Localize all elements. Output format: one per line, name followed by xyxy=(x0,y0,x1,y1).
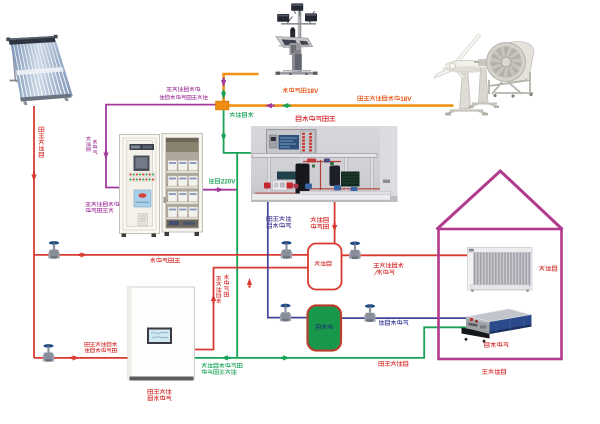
svg-text:18V: 18V xyxy=(400,96,412,103)
svg-text:18V: 18V xyxy=(307,88,319,95)
svg-text:220V: 220V xyxy=(221,179,237,186)
